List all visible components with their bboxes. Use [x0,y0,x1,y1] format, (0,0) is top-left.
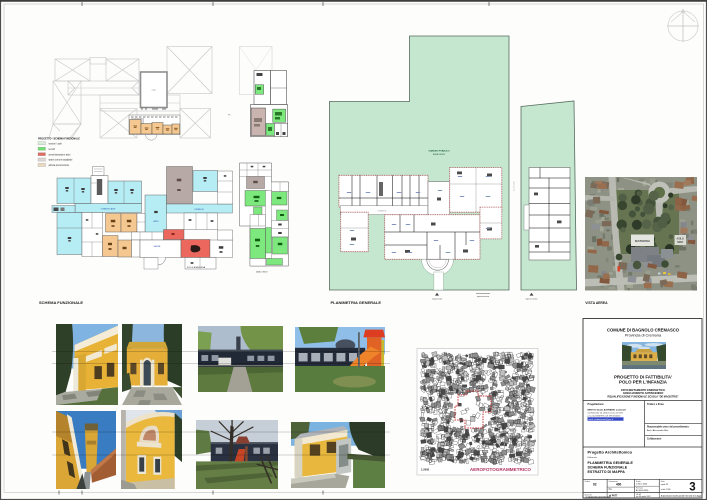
svg-text:email: studioastrario@pec.it: email: studioastrario@pec.it [588,418,613,421]
svg-text:Collaboratori: Collaboratori [647,438,662,441]
svg-text:POLO PER L'INFANZIA: POLO PER L'INFANZIA [619,380,668,385]
svg-text:A0 (841x1189): A0 (841x1189) [636,489,649,492]
svg-text:ASILO NIDO: ASILO NIDO [256,271,268,274]
svg-text:spazi comuni spogliatoi: spazi comuni spogliatoi [49,159,73,162]
svg-text:02: 02 [593,483,597,487]
svg-text:COMUNE DI BAGNOLO CREMASCO: COMUNE DI BAGNOLO CREMASCO [607,328,680,333]
svg-text:PLANIMETRIA GENERALE: PLANIMETRIA GENERALE [588,461,634,465]
svg-text:Scala: Scala [636,481,641,483]
svg-text:amministrazione atrio: amministrazione atrio [49,153,72,156]
svg-text:Elaborato: Elaborato [588,456,598,459]
svg-text:Responsabile unico del procedi: Responsabile unico del procedimento: [647,426,689,429]
svg-text:Provincia di Cremona: Provincia di Cremona [625,334,662,338]
svg-text:Data: Data [661,480,665,483]
svg-text:Progettazione:: Progettazione: [588,403,605,406]
svg-text:A riproduzione anche parziale: A riproduzione anche parziale riservata … [661,494,702,497]
svg-text:Progetto Architettonico: Progetto Architettonico [588,450,633,455]
svg-text:NIDO: NIDO [677,241,683,244]
svg-text:CORRIDOIO: CORRIDOIO [377,211,387,213]
svg-text:CORRIDOIO AULE: CORRIDOIO AULE [101,207,116,210]
svg-text:CORRIDOIO: CORRIDOIO [194,209,204,211]
svg-text:MATERNA: MATERNA [635,239,651,243]
svg-text:scala 1:200: scala 1:200 [661,489,671,491]
svg-text:3: 3 [689,482,695,494]
svg-text:rev 00 aprile 2023: rev 00 aprile 2023 [636,496,650,498]
svg-text:SALONE: SALONE [154,245,162,248]
svg-text:Codice: Codice [585,481,591,483]
svg-text:attivita psicomotoria: attivita psicomotoria [49,164,70,167]
svg-text:Timbro e firma: Timbro e firma [647,403,664,406]
svg-text:RIQUALIFICAZIONE FUNZIONALE SC: RIQUALIFICAZIONE FUNZIONALE SCUOLA "DE M… [607,395,678,398]
svg-text:aprile 23: aprile 23 [661,483,668,486]
svg-text:AEROFOTOGRAMMETRICO: AEROFOTOGRAMMETRICO [470,467,532,472]
svg-text:ATRIO: ATRIO [153,220,159,223]
svg-text:via Rubinetto 26, 26013 Crema: via Rubinetto 26, 26013 Crema tel 0373 [588,412,624,415]
svg-text:ESTRATTO DI MAPPA: ESTRATTO DI MAPPA [588,470,626,474]
svg-text:p.iva 01234567890 cell 339 000: p.iva 01234567890 cell 339 0000000 [588,415,622,417]
svg-text:SCHEMA FUNZIONALE: SCHEMA FUNZIONALE [39,300,83,305]
svg-text:MRVV E Studio ASTRARIO archist: MRVV E Studio ASTRARIO archistaff [588,409,626,412]
svg-text:sezioni / aule: sezioni / aule [49,144,63,146]
svg-text:SCUOLA MATERNA: SCUOLA MATERNA [187,266,206,269]
svg-text:1:2000: 1:2000 [421,468,430,472]
svg-text:GIARDINO PUBBLICO: GIARDINO PUBBLICO [429,150,450,153]
svg-text:Arch. Alessandra Rho: Arch. Alessandra Rho [647,429,669,432]
svg-text:AREA VERDE: AREA VERDE [433,153,446,156]
svg-text:PROGETTO - SCHEMA FUNZIONALE: PROGETTO - SCHEMA FUNZIONALE [38,138,80,141]
svg-text:ingresso servizio: ingresso servizio [526,298,538,300]
svg-text:ingresso nido: ingresso nido [432,298,442,300]
svg-text:400: 400 [616,483,622,487]
svg-text:Formato: Formato [636,487,643,490]
svg-text:SCHEMA FUNZIONALE: SCHEMA FUNZIONALE [588,465,628,469]
svg-text:via XXV aprile: via XXV aprile [514,181,516,191]
svg-text:servizi: servizi [49,148,56,151]
svg-text:PLANIMETRIA GENERALE: PLANIMETRIA GENERALE [331,300,382,305]
svg-text:1:200 1:2000: 1:200 1:2000 [636,484,647,486]
svg-text:id P677: id P677 [609,495,618,498]
svg-text:Agg.: Agg. [609,488,613,491]
svg-text:VISTA AEREA: VISTA AEREA [585,301,608,305]
